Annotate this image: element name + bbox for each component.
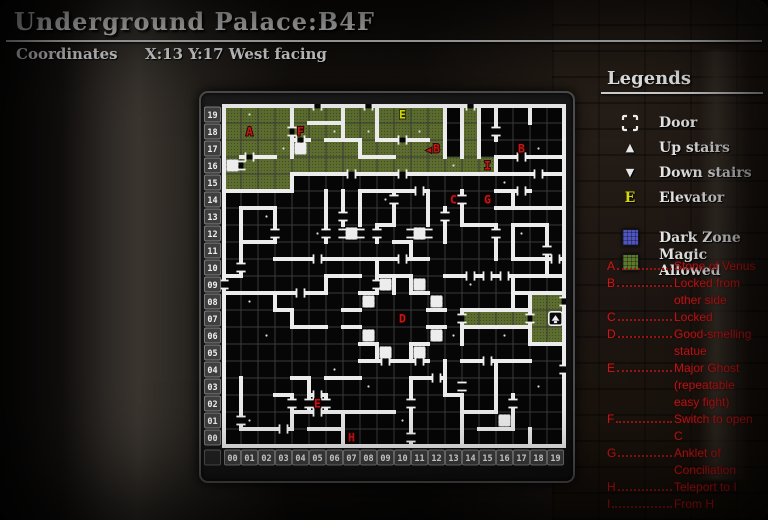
- note-leader-dots: [618, 455, 672, 457]
- note-row: BLocked from: [607, 273, 760, 290]
- svg-text:06: 06: [329, 454, 339, 464]
- note-continuation: (repeatable: [607, 375, 760, 392]
- dungeon-map[interactable]: AFE◀BBICGDEH0001020304050607080910111213…: [204, 104, 566, 468]
- svg-text:17: 17: [516, 454, 526, 464]
- svg-text:07: 07: [346, 454, 356, 464]
- svg-text:08: 08: [363, 454, 373, 464]
- svg-text:19: 19: [207, 111, 217, 121]
- note-continuation: other side: [607, 290, 760, 307]
- svg-text:16: 16: [499, 454, 509, 464]
- svg-text:02: 02: [207, 400, 217, 410]
- note-text: Stone of Venus: [674, 259, 760, 273]
- note-row: EMajor Ghost: [607, 358, 760, 375]
- map-marker-E: E: [399, 108, 406, 122]
- legends-title: Legends: [607, 68, 763, 89]
- legend-item: Door: [601, 110, 763, 135]
- map-marker-D: D: [399, 312, 406, 326]
- svg-text:11: 11: [414, 454, 424, 464]
- page-title: Underground Palace:B4F: [14, 7, 375, 36]
- coordinates-value: X:13 Y:17 West facing: [145, 45, 327, 63]
- svg-text:04: 04: [295, 454, 305, 464]
- map-marker-A: A: [246, 125, 253, 139]
- svg-text:19: 19: [550, 454, 560, 464]
- svg-text:02: 02: [261, 454, 271, 464]
- map-marker-I: I: [484, 159, 491, 173]
- svg-text:18: 18: [533, 454, 543, 464]
- note-text: Conciliation: [674, 463, 736, 477]
- note-key: F: [607, 412, 614, 426]
- note-key: G: [607, 446, 616, 460]
- svg-text:17: 17: [207, 145, 217, 155]
- legend-list: Door▲Up stairs▼Down stairsEElevatorDark …: [601, 110, 763, 275]
- note-text: Major Ghost: [674, 361, 760, 375]
- svg-text:03: 03: [207, 383, 217, 393]
- svg-text:05: 05: [312, 454, 322, 464]
- legend-item-label: Elevator: [659, 190, 724, 206]
- up-stairs-icon: ▲: [601, 141, 659, 154]
- note-key: E: [607, 361, 615, 375]
- note-key: H: [607, 480, 616, 494]
- note-text: Teleport to I: [674, 480, 760, 494]
- legends-underline: [601, 92, 763, 94]
- note-continuation: C: [607, 426, 760, 443]
- svg-text:05: 05: [207, 349, 217, 359]
- svg-text:03: 03: [278, 454, 288, 464]
- svg-text:01: 01: [207, 417, 217, 427]
- svg-text:10: 10: [207, 264, 217, 274]
- svg-text:16: 16: [207, 162, 217, 172]
- note-text: Locked: [674, 310, 760, 324]
- note-leader-dots: [618, 319, 672, 321]
- note-row: AStone of Venus: [607, 256, 760, 273]
- note-row: DGood-smelling: [607, 324, 760, 341]
- svg-text:09: 09: [207, 281, 217, 291]
- note-key: D: [607, 327, 616, 341]
- note-text: Good-smelling: [674, 327, 760, 341]
- map-marker-B: B: [518, 142, 525, 156]
- note-text: statue: [674, 344, 707, 358]
- up-stairs-icon: [549, 312, 562, 325]
- svg-text:13: 13: [448, 454, 458, 464]
- note-row: FSwitch to open: [607, 409, 760, 426]
- svg-text:12: 12: [431, 454, 441, 464]
- dark-zone-swatch: [601, 229, 659, 246]
- svg-text:09: 09: [380, 454, 390, 464]
- svg-text:04: 04: [207, 366, 217, 376]
- svg-text:14: 14: [207, 196, 217, 206]
- note-leader-dots: [618, 489, 672, 491]
- note-row: CLocked: [607, 307, 760, 324]
- svg-text:15: 15: [207, 179, 217, 189]
- svg-text:00: 00: [207, 434, 217, 444]
- note-key: B: [607, 276, 615, 290]
- coordinates-label: Coordinates: [16, 45, 118, 63]
- note-key: A: [607, 259, 615, 273]
- legend-item-label: Down stairs: [659, 165, 752, 181]
- note-key: C: [607, 310, 616, 324]
- note-leader-dots: [617, 370, 672, 372]
- note-text: C: [674, 429, 683, 443]
- note-row: HTeleport to I: [607, 477, 760, 494]
- legend-item: EElevator: [601, 185, 763, 210]
- note-leader-dots: [617, 285, 672, 287]
- map-marker-◀: ◀: [426, 146, 431, 155]
- map-marker-B: B: [433, 142, 440, 156]
- note-text: other side: [674, 293, 727, 307]
- legend-item-label: Dark Zone: [659, 230, 741, 246]
- note-text: Locked from: [674, 276, 760, 290]
- legend-item: ▲Up stairs: [601, 135, 763, 160]
- note-text: easy fight): [674, 395, 729, 409]
- legend-item-label: Door: [659, 115, 697, 131]
- svg-text:07: 07: [207, 315, 217, 325]
- note-continuation: Conciliation: [607, 460, 760, 477]
- map-marker-C: C: [450, 193, 457, 207]
- down-stairs-icon: ▼: [601, 166, 659, 179]
- svg-text:18: 18: [207, 128, 217, 138]
- svg-text:12: 12: [207, 230, 217, 240]
- legend-item: ▼Down stairs: [601, 160, 763, 185]
- map-marker-H: H: [348, 431, 355, 445]
- svg-text:15: 15: [482, 454, 492, 464]
- svg-text:08: 08: [207, 298, 217, 308]
- legends-panel: Legends Door▲Up stairs▼Down stairsEEleva…: [601, 68, 763, 275]
- map-marker-E: E: [314, 397, 321, 411]
- svg-text:13: 13: [207, 213, 217, 223]
- note-row: IFrom H: [607, 494, 760, 511]
- note-text: (repeatable: [674, 378, 735, 392]
- map-panel: AFE◀BBICGDEH0001020304050607080910111213…: [199, 91, 575, 483]
- note-leader-dots: [612, 506, 672, 508]
- note-leader-dots: [616, 421, 672, 423]
- note-key: I: [607, 497, 610, 511]
- notes-list: AStone of VenusBLocked fromother sideCLo…: [607, 256, 760, 511]
- note-row: GAnklet of: [607, 443, 760, 460]
- door-icon: [601, 113, 659, 133]
- svg-text:06: 06: [207, 332, 217, 342]
- note-continuation: statue: [607, 341, 760, 358]
- svg-text:11: 11: [207, 247, 217, 257]
- svg-text:01: 01: [244, 454, 254, 464]
- note-text: From H: [674, 497, 760, 511]
- title-underline: [6, 40, 762, 42]
- note-leader-dots: [617, 268, 672, 270]
- svg-text:14: 14: [465, 454, 475, 464]
- svg-text:00: 00: [227, 454, 237, 464]
- legend-item-label: Up stairs: [659, 140, 730, 156]
- map-marker-G: G: [484, 193, 491, 207]
- note-continuation: easy fight): [607, 392, 760, 409]
- note-text: Anklet of: [674, 446, 760, 460]
- note-leader-dots: [618, 336, 672, 338]
- elevator-icon: E: [601, 190, 659, 206]
- map-marker-F: F: [297, 125, 304, 139]
- game-screen: Underground Palace:B4F Coordinates X:13 …: [0, 0, 768, 520]
- svg-text:10: 10: [397, 454, 407, 464]
- note-text: Switch to open: [674, 412, 760, 426]
